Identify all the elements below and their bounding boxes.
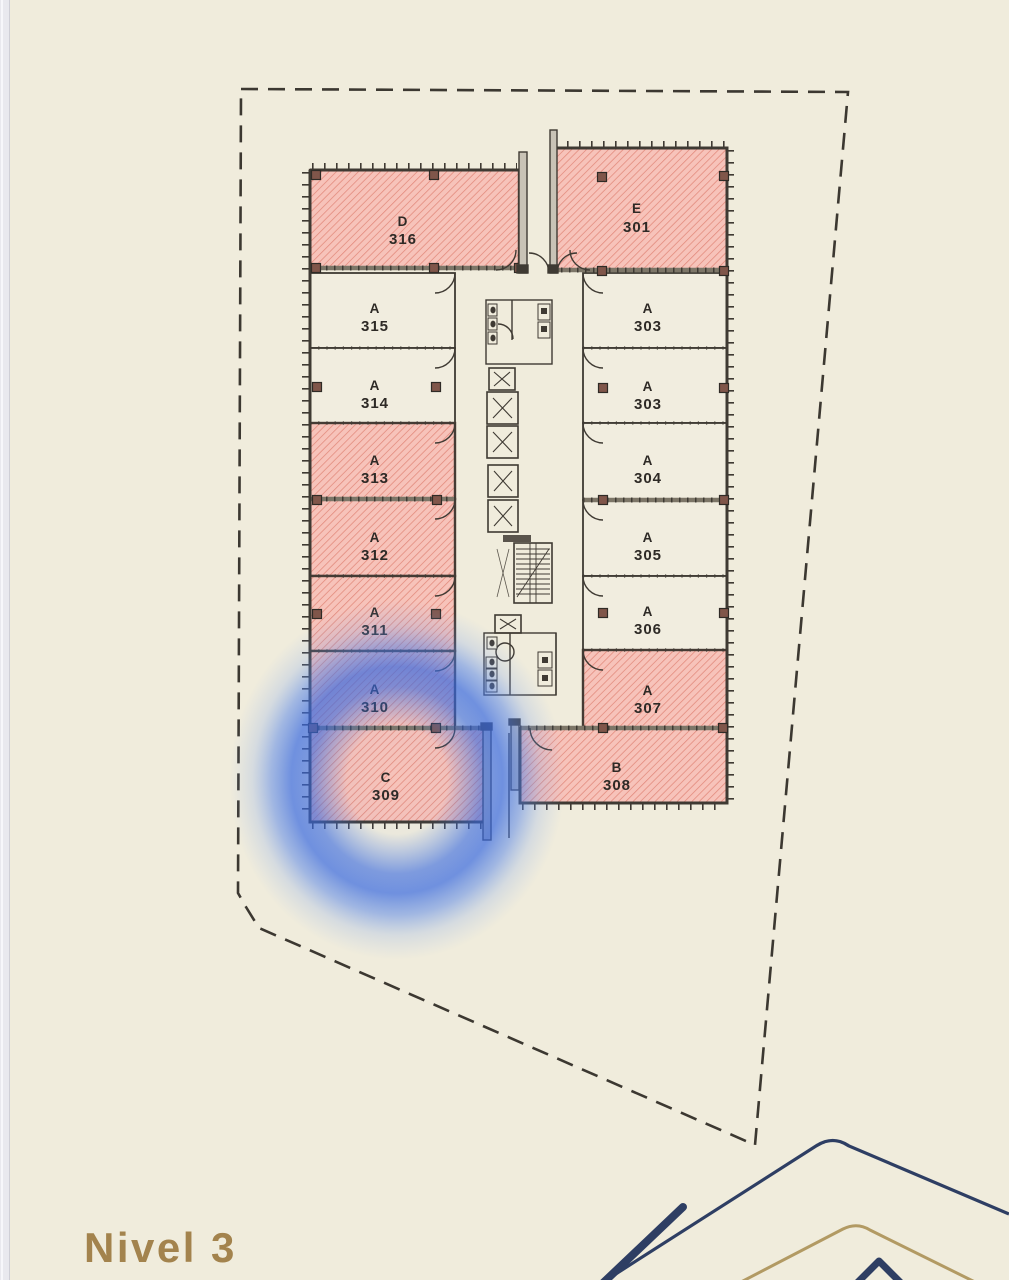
unit-letter: A bbox=[643, 683, 654, 698]
unit-letter: A bbox=[370, 378, 381, 393]
unit-letter: A bbox=[370, 301, 381, 316]
unit-number: 308 bbox=[603, 777, 631, 794]
unit-number: 305 bbox=[634, 547, 662, 564]
unit-letter: A bbox=[643, 379, 654, 394]
unit-number: 303 bbox=[634, 396, 662, 413]
unit-A-307[interactable]: A 307 bbox=[583, 650, 727, 728]
unit-letter: A bbox=[370, 530, 381, 545]
unit-letter: A bbox=[370, 453, 381, 468]
floor-plan-canvas: D 316 E 301 A 315 A 303 A 314 bbox=[0, 0, 1009, 1280]
unit-A-313[interactable]: A 313 bbox=[310, 423, 455, 499]
unit-number: 306 bbox=[634, 621, 662, 638]
unit-letter: D bbox=[398, 214, 409, 229]
unit-A-315[interactable]: A 315 bbox=[310, 273, 455, 348]
unit-letter: B bbox=[612, 760, 623, 775]
unit-letter: A bbox=[643, 604, 654, 619]
unit-letter: A bbox=[643, 301, 654, 316]
unit-number: 307 bbox=[634, 700, 662, 717]
level-title: Nivel 3 bbox=[84, 1224, 237, 1271]
unit-number: 303 bbox=[634, 318, 662, 335]
unit-number: 314 bbox=[361, 395, 389, 412]
unit-letter: A bbox=[643, 530, 654, 545]
unit-A-303-upper[interactable]: A 303 bbox=[583, 273, 727, 348]
unit-A-305[interactable]: A 305 bbox=[583, 500, 727, 576]
unit-letter: A bbox=[643, 453, 654, 468]
unit-E-301[interactable]: E 301 bbox=[553, 148, 727, 270]
unit-number: 304 bbox=[634, 470, 662, 487]
unit-number: 316 bbox=[389, 231, 417, 248]
unit-number: 315 bbox=[361, 318, 389, 335]
unit-A-312[interactable]: A 312 bbox=[310, 499, 455, 576]
unit-A-304[interactable]: A 304 bbox=[583, 423, 727, 500]
unit-number: 312 bbox=[361, 547, 389, 564]
unit-letter: E bbox=[632, 201, 642, 216]
selected-unit-highlight-ring bbox=[229, 600, 565, 960]
left-scrollbar[interactable] bbox=[0, 0, 10, 1280]
unit-number: 313 bbox=[361, 470, 389, 487]
unit-number: 301 bbox=[623, 219, 651, 236]
floorplan-viewer-screen: D 316 E 301 A 315 A 303 A 314 bbox=[0, 0, 1009, 1280]
unit-D-316[interactable]: D 316 bbox=[310, 170, 519, 268]
